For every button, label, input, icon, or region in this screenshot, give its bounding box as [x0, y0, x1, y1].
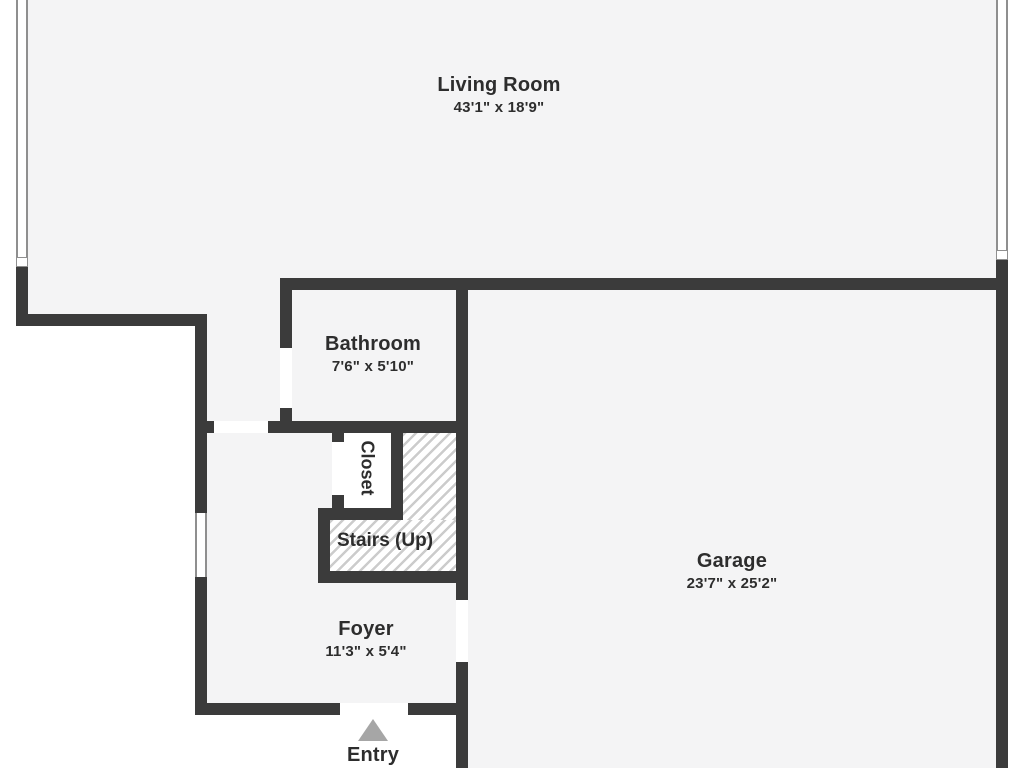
wall-closet-south: [318, 508, 403, 520]
foyer-dimensions: 11'3" x 5'4": [266, 644, 466, 661]
wall-living-room-south: [280, 278, 1008, 290]
garage-dimensions: 23'7" x 25'2": [632, 576, 832, 593]
living-room-label: Living Room 43'1" x 18'9": [369, 74, 629, 117]
wall-living-room-bottom-left: [16, 314, 207, 326]
foyer-title: Foyer: [266, 618, 466, 640]
hall-door-opening: [214, 421, 268, 433]
wall-closet-east: [391, 433, 403, 510]
west-window-cap: [16, 257, 28, 267]
stairs-label: Stairs (Up): [310, 531, 460, 552]
bathroom-label: Bathroom 7'6" x 5'10": [273, 333, 473, 376]
west-window: [16, 0, 28, 257]
east-window-cap: [996, 250, 1008, 260]
east-window: [996, 0, 1008, 250]
entry-arrow-icon: [358, 719, 388, 741]
entry-label: Entry: [293, 744, 453, 766]
wall-stairs-south: [318, 571, 468, 583]
hall-window: [195, 513, 207, 577]
garage-label: Garage 23'7" x 25'2": [632, 550, 832, 593]
floor-plan: Living Room 43'1" x 18'9" Bathroom 7'6" …: [0, 0, 1024, 768]
bathroom-title: Bathroom: [273, 333, 473, 355]
closet-label: Closet: [356, 431, 380, 506]
wall-foyer-south: [195, 703, 468, 715]
living-room-title: Living Room: [369, 74, 629, 96]
garage-title: Garage: [632, 550, 832, 572]
wall-east-exterior: [996, 260, 1008, 768]
entry-door-opening: [340, 703, 408, 715]
garage-floor: [456, 278, 1008, 768]
living-room-dimensions: 43'1" x 18'9": [369, 100, 629, 117]
bathroom-dimensions: 7'6" x 5'10": [273, 359, 473, 376]
closet-door-opening: [332, 442, 344, 495]
foyer-label: Foyer 11'3" x 5'4": [266, 618, 466, 661]
